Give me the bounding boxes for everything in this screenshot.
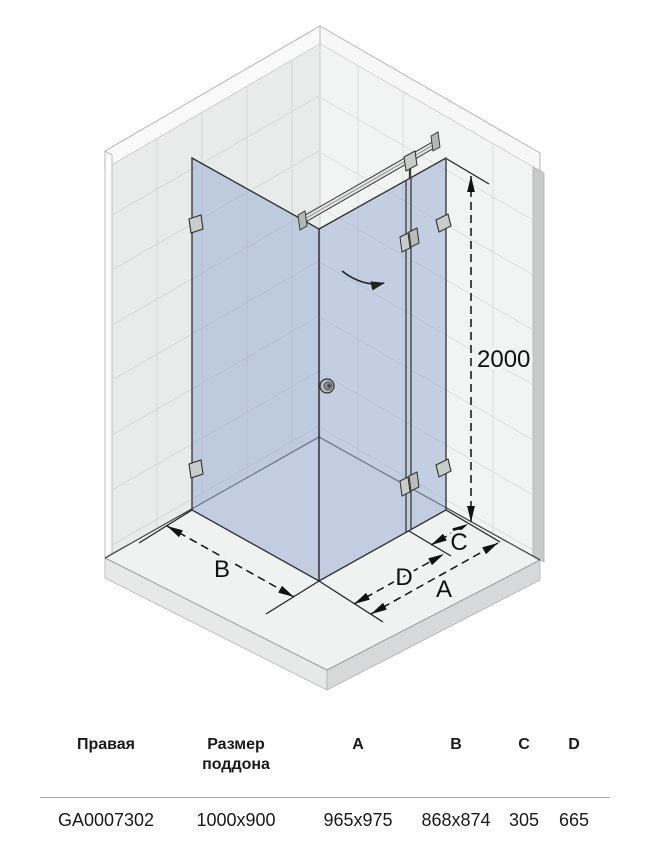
spec-table: Правая Размер поддона A B C D GA0007302 … (40, 724, 610, 831)
cell-value-c: 305 (496, 809, 552, 831)
cell-value-a: 965x975 (300, 809, 416, 831)
col-header-b: B (416, 735, 496, 775)
cell-value-d: 665 (552, 809, 596, 831)
col-header-orientation: Правая (40, 735, 172, 775)
catalog-page: 2000 B D A C Правая Размер поддона A B C… (0, 0, 650, 850)
left-wall-outer-edge (105, 151, 112, 558)
bar-end-bracket-left (298, 211, 307, 230)
shower-enclosure-diagram: 2000 B D A C (0, 0, 650, 710)
col-header-tray-size: Размер поддона (172, 735, 300, 775)
cell-value-b: 868x874 (416, 809, 496, 831)
dimension-label-a: A (436, 576, 452, 603)
door-glass-assembly[interactable] (319, 158, 446, 581)
col-header-c: C (496, 735, 552, 775)
col-header-a: A (300, 735, 416, 775)
spec-table-data-row: GA0007302 1000x900 965x975 868x874 305 6… (40, 798, 610, 831)
dimension-label-d: D (395, 564, 412, 591)
dimension-label-height: 2000 (477, 346, 530, 373)
dimension-label-b: B (214, 556, 230, 583)
door-knob[interactable] (320, 379, 334, 393)
right-wall-outer-edge (533, 167, 544, 562)
cell-article-code: GA0007302 (40, 809, 172, 831)
col-header-d: D (552, 735, 596, 775)
spec-table-header-row: Правая Размер поддона A B C D (40, 724, 610, 798)
dimension-label-c: C (450, 529, 467, 556)
bar-end-bracket-right (431, 132, 440, 151)
cell-tray-size: 1000x900 (172, 809, 300, 831)
